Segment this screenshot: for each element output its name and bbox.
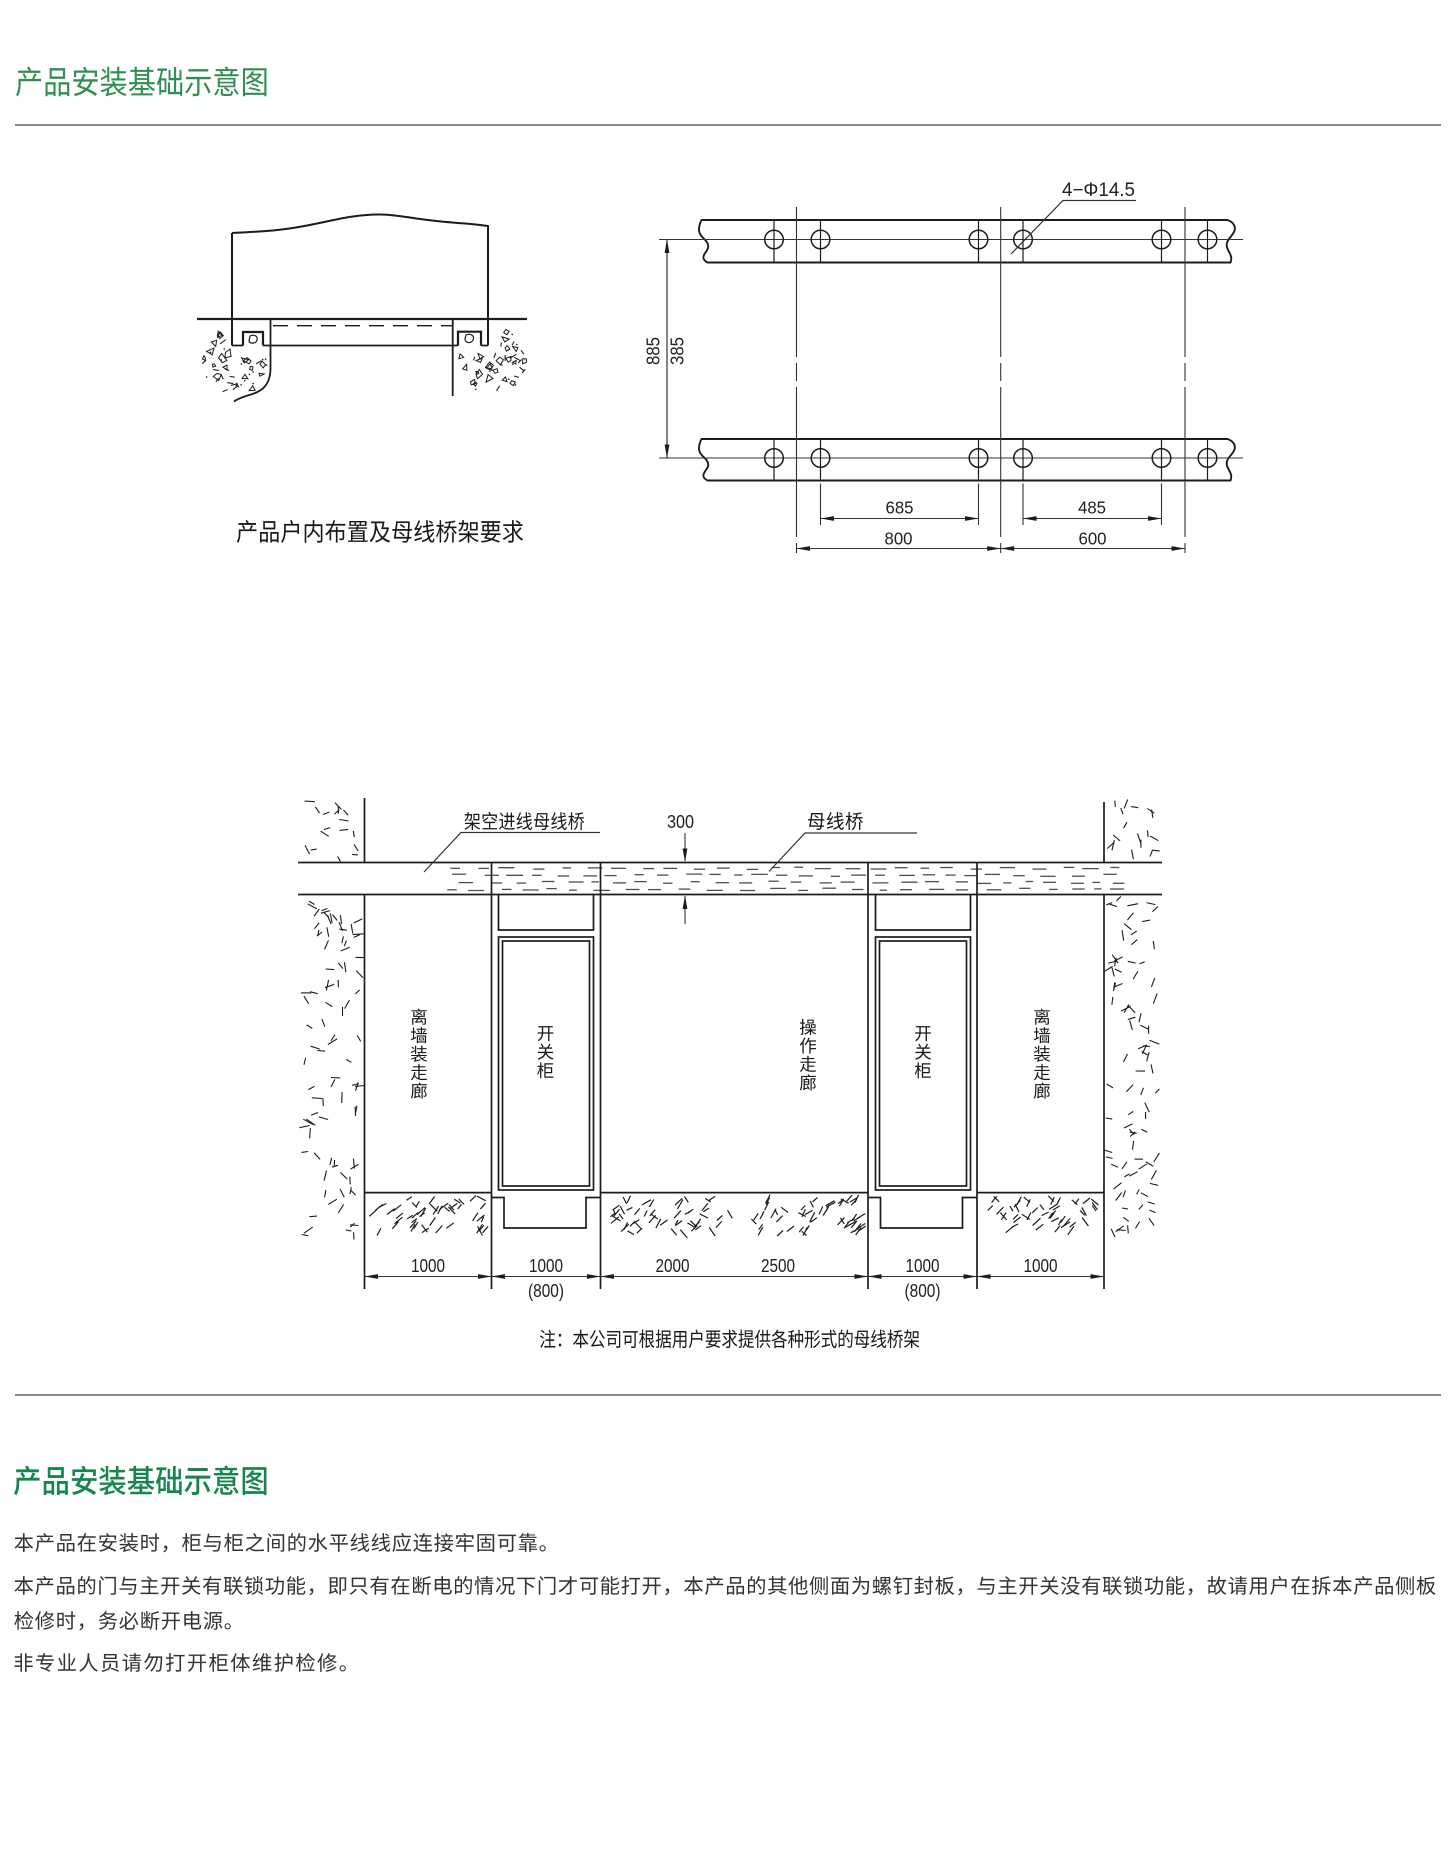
svg-text:800: 800 bbox=[885, 529, 913, 549]
svg-text:2500: 2500 bbox=[761, 1255, 795, 1276]
svg-text:4−Φ14.5: 4−Φ14.5 bbox=[1062, 180, 1135, 201]
svg-text:600: 600 bbox=[1079, 529, 1107, 549]
svg-text:485: 485 bbox=[1078, 498, 1106, 518]
svg-text:300: 300 bbox=[667, 811, 694, 832]
svg-text:885: 885 bbox=[644, 337, 664, 365]
svg-text:1000: 1000 bbox=[1024, 1255, 1058, 1276]
svg-text:(800): (800) bbox=[528, 1280, 564, 1301]
svg-text:685: 685 bbox=[886, 498, 914, 518]
svg-text:1000: 1000 bbox=[411, 1255, 445, 1276]
svg-text:385: 385 bbox=[668, 337, 688, 365]
svg-text:1000: 1000 bbox=[529, 1255, 563, 1276]
svg-text:1000: 1000 bbox=[906, 1255, 940, 1276]
svg-text:(800): (800) bbox=[905, 1280, 941, 1301]
svg-text:2000: 2000 bbox=[656, 1255, 690, 1276]
